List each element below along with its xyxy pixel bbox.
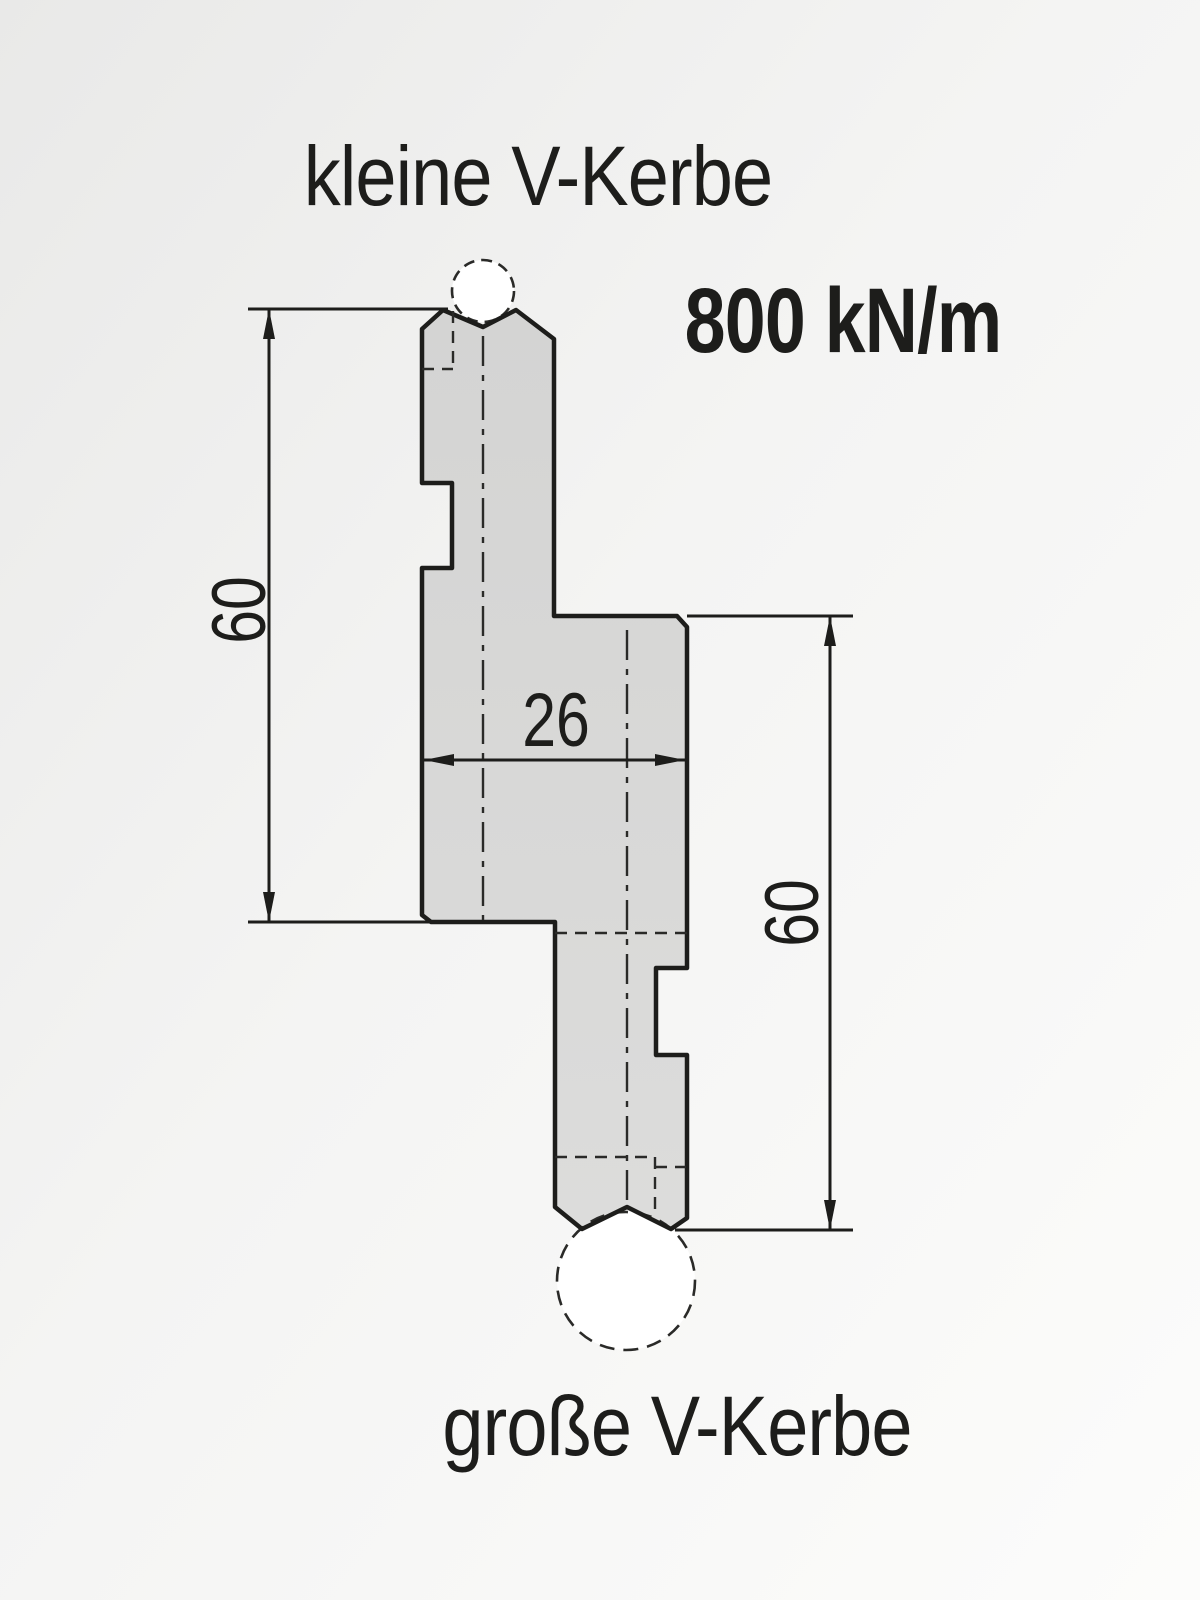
drawing-page: 60 60 26 kleine V-Kerbe 800 kN/m große V… (0, 0, 1200, 1600)
label-force-rating: 800 kN/m (685, 269, 1002, 372)
label-large-v-notch: große V-Kerbe (442, 1379, 911, 1473)
dimension-value-left-height: 60 (197, 576, 282, 644)
small-v-bar-circle (452, 260, 514, 322)
dimension-value-right-height: 60 (750, 879, 835, 947)
technical-drawing-canvas: 60 60 26 kleine V-Kerbe 800 kN/m große V… (0, 0, 1200, 1600)
label-small-v-notch: kleine V-Kerbe (304, 129, 772, 223)
large-v-bar-circle (557, 1212, 695, 1350)
dimension-value-body-width: 26 (522, 678, 590, 763)
